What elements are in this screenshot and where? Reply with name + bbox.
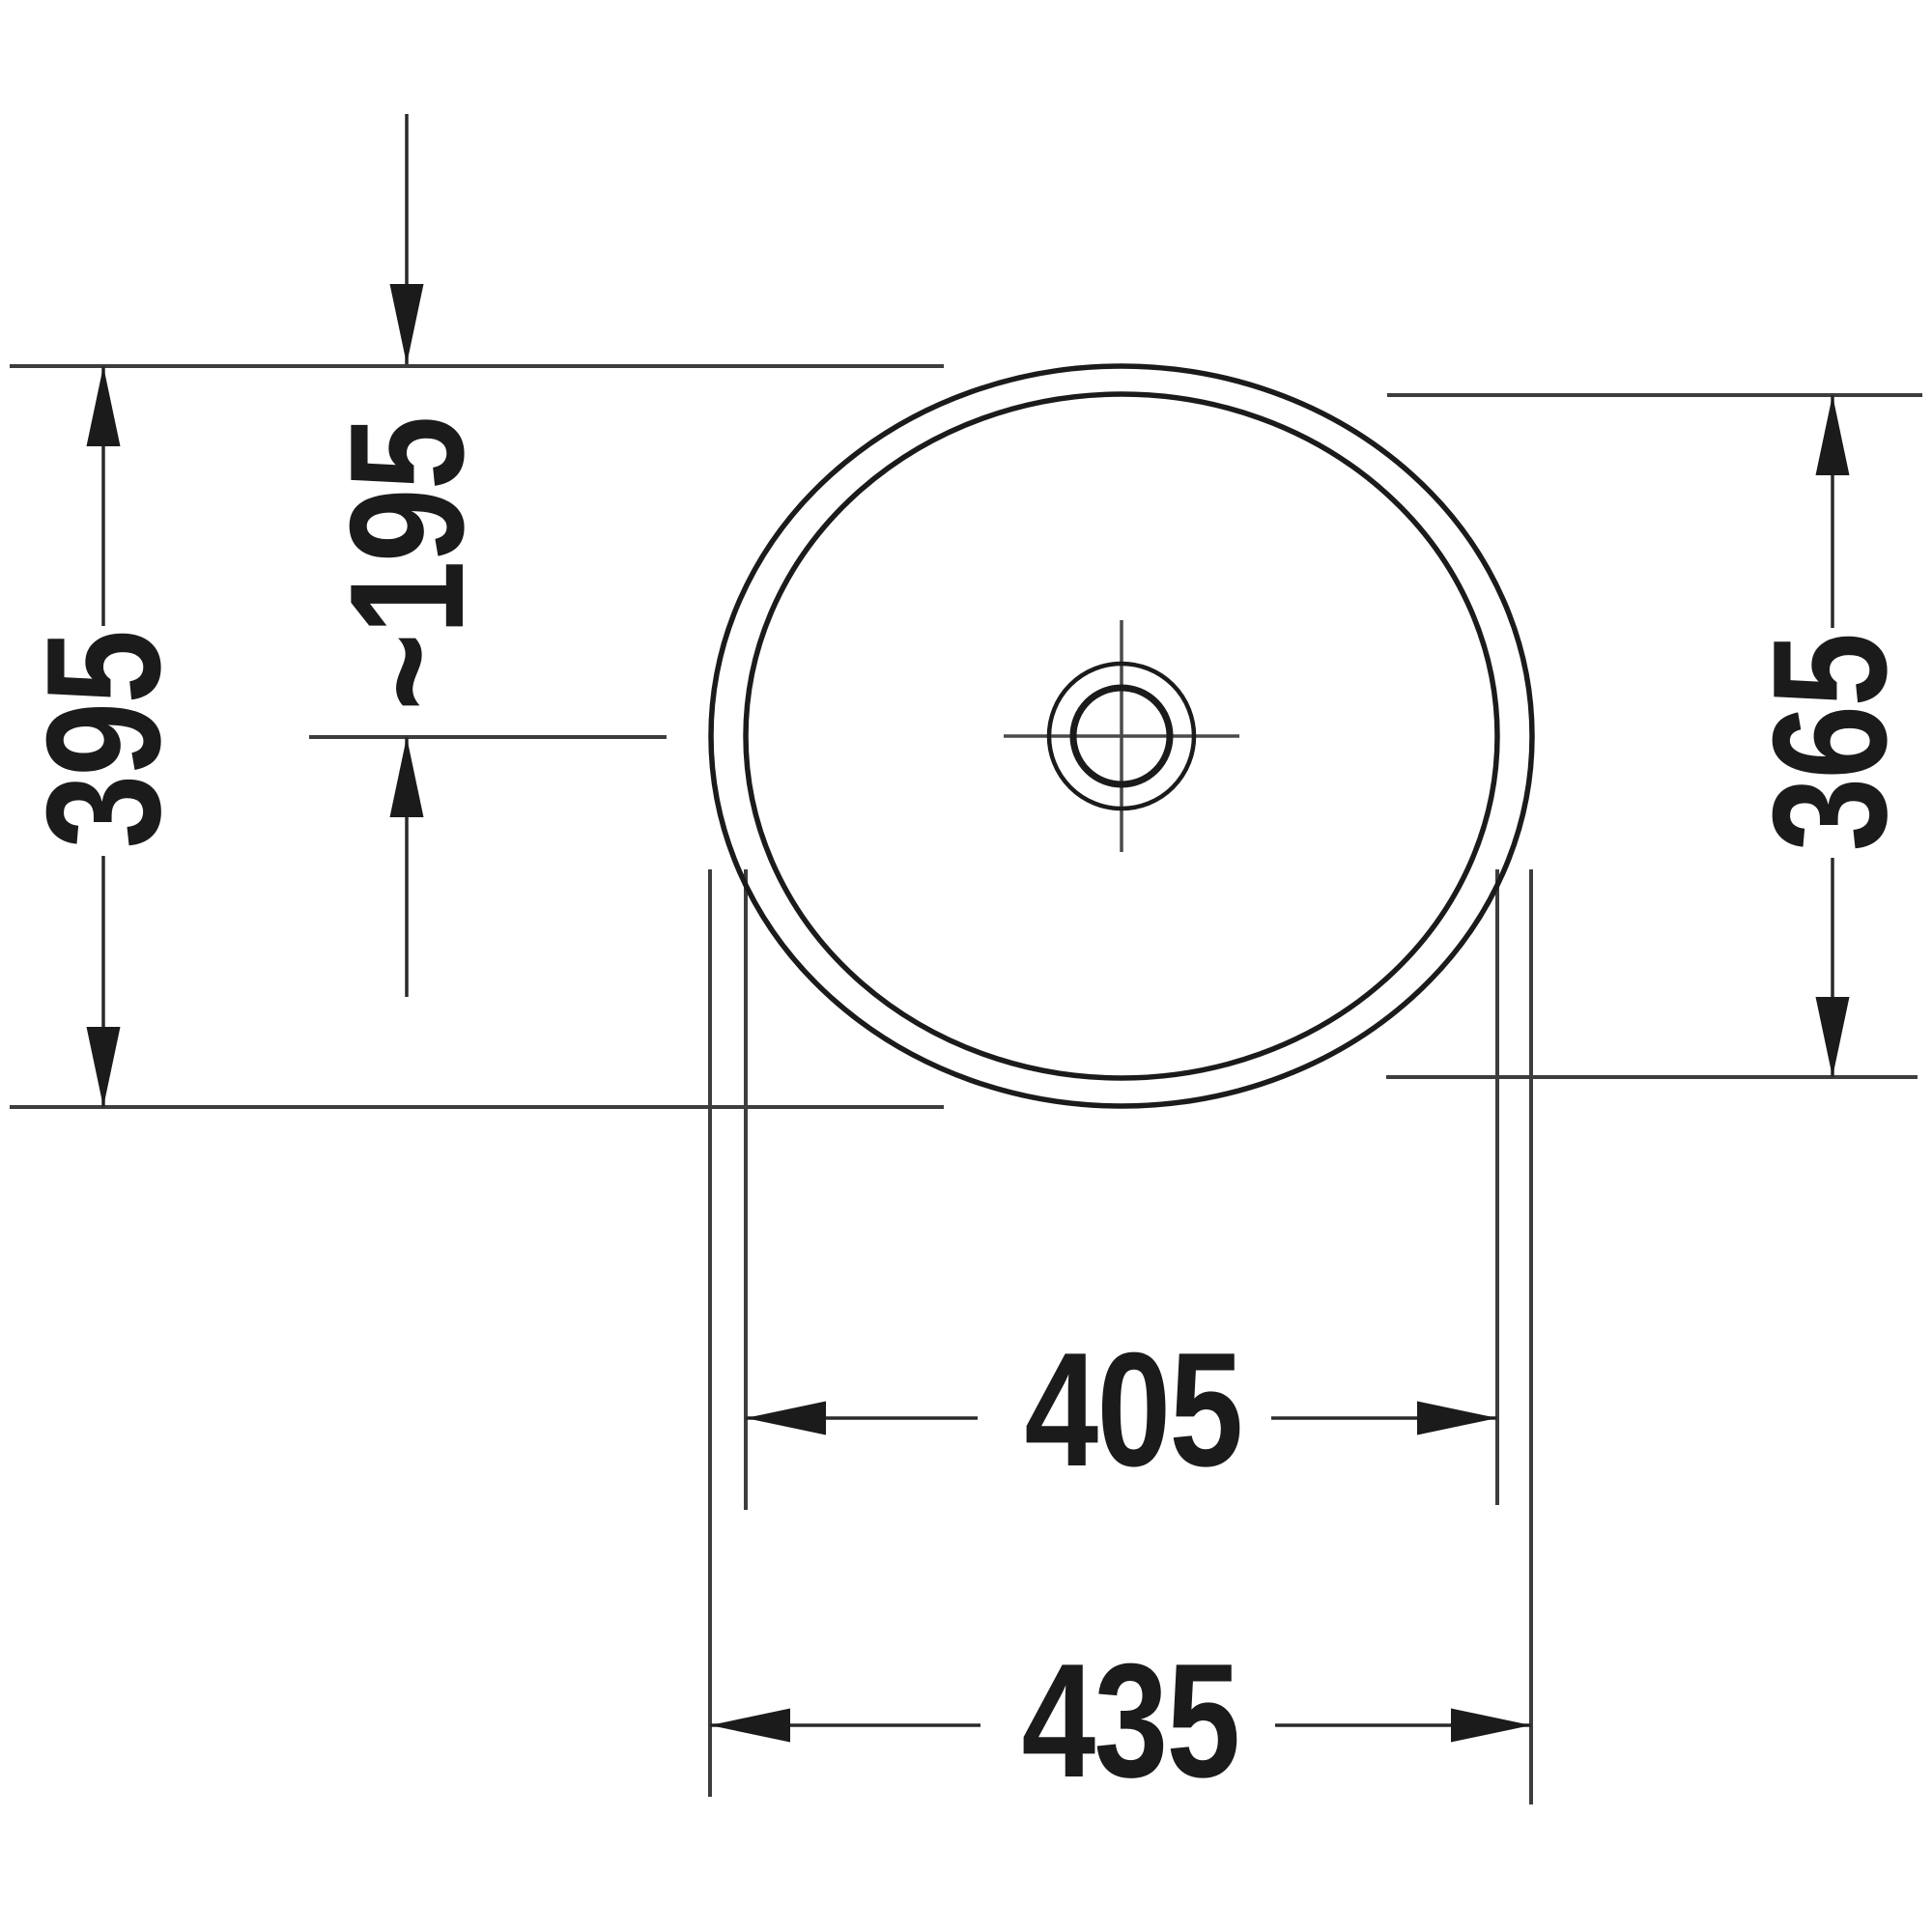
arrowhead-up (390, 737, 424, 817)
reference-lines (10, 366, 1922, 1107)
dim-label-inner-depth: 365 (1739, 635, 1920, 852)
arrowhead-down (390, 284, 424, 364)
dim-label-inner-width: 405 (1025, 1319, 1242, 1500)
dim-label-outer-depth: 395 (13, 632, 194, 849)
dim-label-outer-width: 435 (1022, 1630, 1239, 1811)
dim-center-offset: ~195 (316, 114, 497, 997)
dim-label-center-offset: ~195 (316, 417, 497, 711)
dim-outer-width: 435 (710, 1630, 1531, 1811)
drain (1004, 620, 1239, 852)
arrowhead-down (87, 1027, 121, 1107)
arrowhead-up (87, 366, 121, 446)
arrowhead-right (1451, 1709, 1531, 1743)
drawing-canvas: 395 ~195 365 405 (0, 0, 1932, 1932)
arrowhead-down (1816, 997, 1850, 1077)
dim-inner-depth: 365 (1739, 395, 1920, 1077)
washbasin-technical-drawing: 395 ~195 365 405 (0, 0, 1932, 1932)
dim-inner-width: 405 (746, 1319, 1497, 1500)
arrowhead-left (710, 1709, 790, 1743)
dim-outer-depth: 395 (13, 366, 194, 1107)
arrowhead-right (1417, 1402, 1497, 1435)
arrowhead-up (1816, 395, 1850, 475)
arrowhead-left (746, 1402, 826, 1435)
